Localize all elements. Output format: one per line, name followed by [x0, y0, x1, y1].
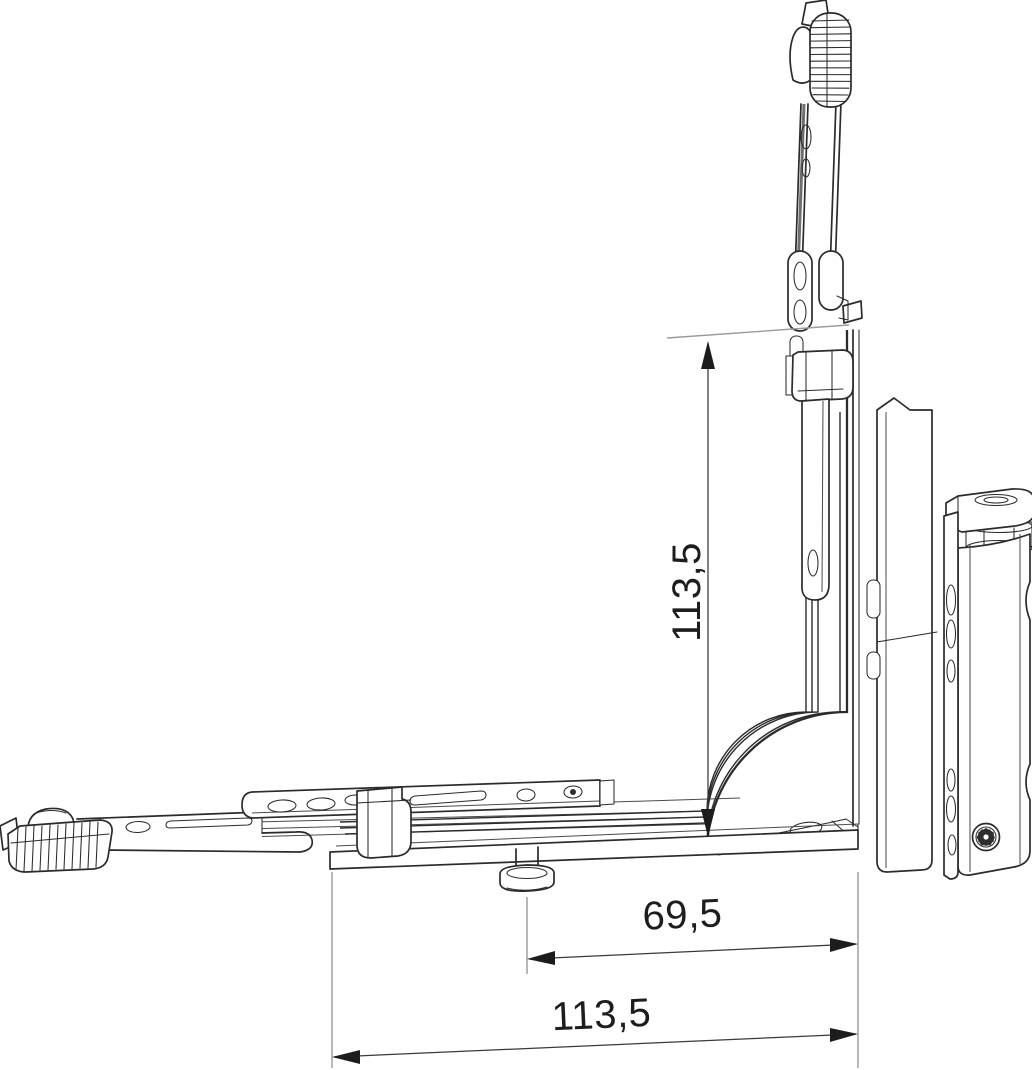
mounting-back-plate [867, 398, 937, 872]
extension-line-top [667, 325, 849, 338]
hinge-faceplate-strip [944, 512, 958, 879]
dimension-label-lower: 113,5 [551, 991, 653, 1039]
dimension-label-upper: 69,5 [642, 891, 724, 939]
rod-lower-plate [802, 399, 829, 600]
toothed-rack-head-left [8, 820, 112, 872]
toothed-rack-head-top [790, 0, 851, 107]
transfer-clamp [786, 350, 853, 401]
vertical-drive-rod [786, 0, 853, 600]
dimension-horizontal-upper: 69,5 [527, 872, 858, 1068]
dimension-label-vertical: 113,5 [665, 542, 709, 642]
frame-hinge-body [944, 489, 1032, 879]
hinge-cap [946, 489, 1032, 532]
technical-drawing-canvas: 113,5 69,5 113,5 [0, 0, 1032, 1070]
torx-screw-icon [973, 824, 1000, 851]
corner-hinge-drawing: 113,5 69,5 113,5 [0, 0, 1032, 1070]
corner-drive-band [340, 330, 847, 852]
dimension-horizontal-lower: 113,5 [332, 872, 858, 1068]
